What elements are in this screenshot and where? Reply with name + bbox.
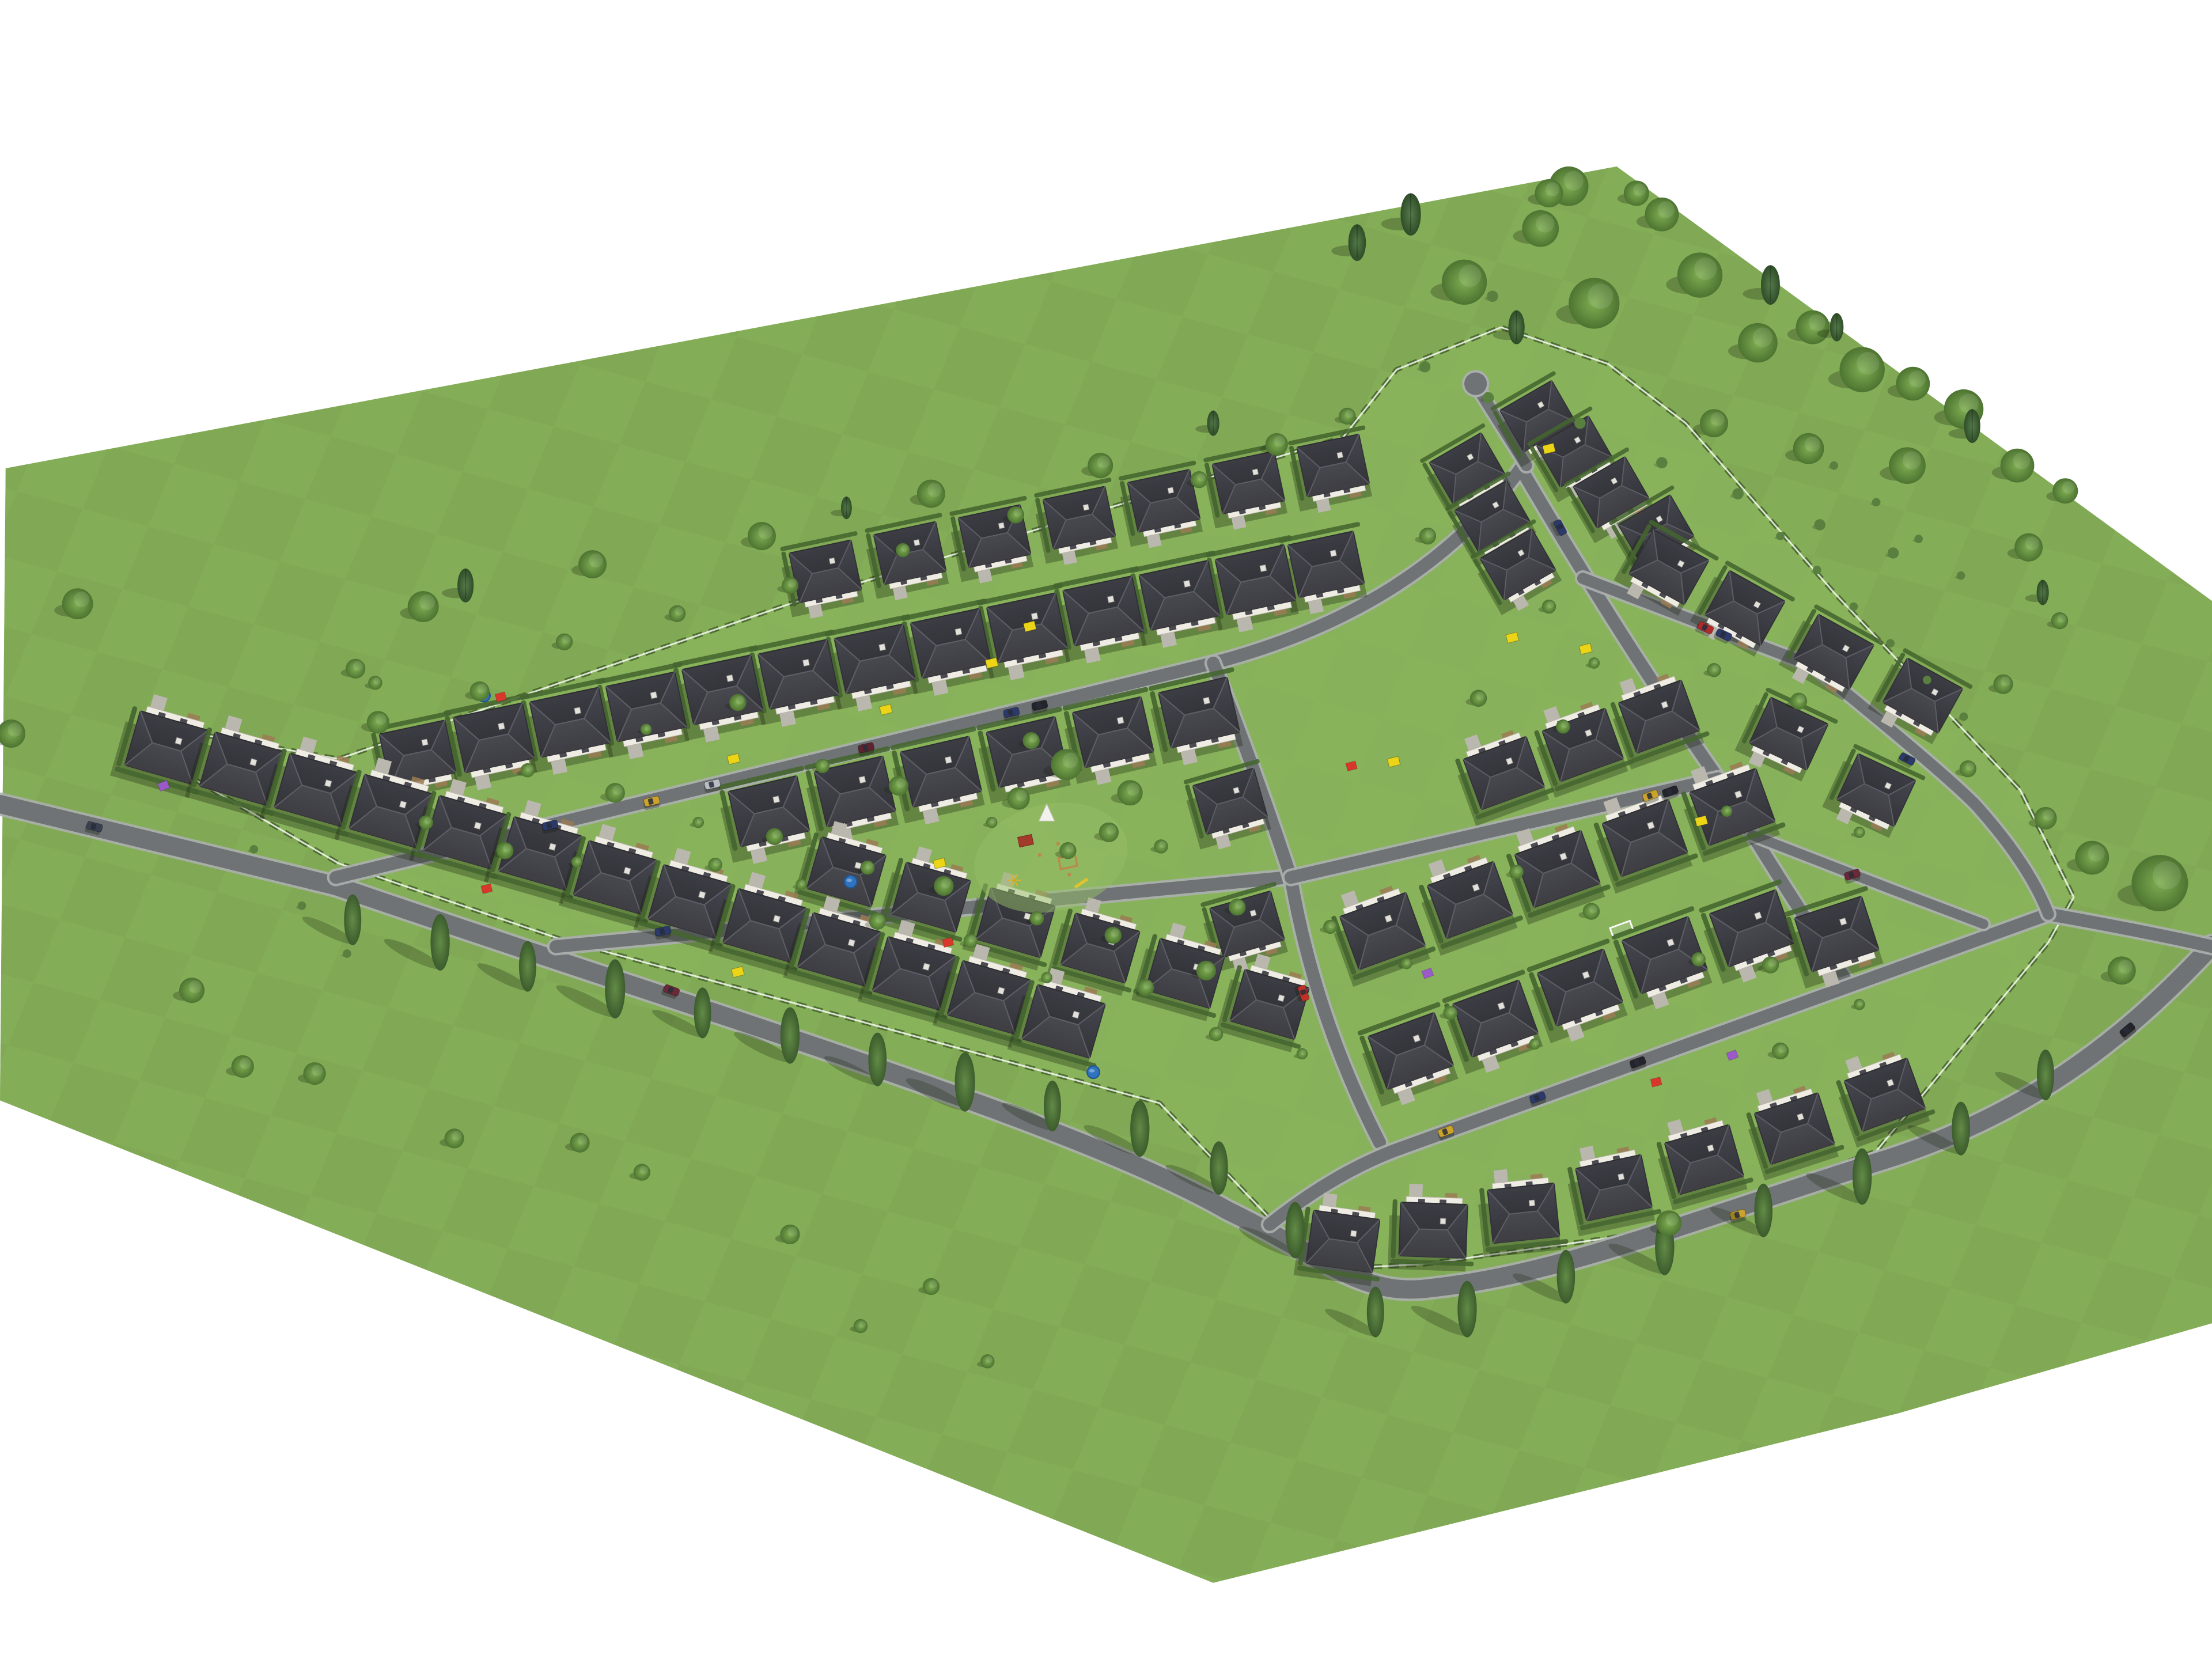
tree-highlight <box>1858 828 1863 834</box>
bush-crown <box>1830 461 1838 470</box>
chimney <box>650 692 657 699</box>
tree-highlight <box>575 858 581 863</box>
tree-highlight <box>375 714 387 725</box>
tree-highlight <box>425 817 431 824</box>
road-knuckle <box>1464 373 1487 395</box>
chimney <box>1233 787 1240 793</box>
tree-highlight <box>866 862 873 869</box>
chimney <box>726 675 733 681</box>
tree-highlight <box>645 725 650 730</box>
tree-highlight <box>788 579 797 588</box>
tree-crown <box>1557 1250 1575 1304</box>
tree-highlight <box>562 635 571 644</box>
tree-crown <box>1754 1184 1772 1237</box>
tree-highlight <box>1143 981 1152 990</box>
tree-highlight <box>2043 809 2054 821</box>
tree-highlight <box>2118 960 2132 974</box>
chimney <box>1529 1200 1535 1206</box>
chimney <box>773 915 780 923</box>
tree-highlight <box>1725 807 1731 813</box>
bush-crown <box>298 902 306 910</box>
tree-highlight <box>419 594 435 610</box>
chimney <box>422 739 428 745</box>
tree-highlight <box>927 483 941 497</box>
tree-highlight <box>1697 954 1704 961</box>
tree-highlight <box>1204 963 1214 973</box>
tree-crown <box>1952 1102 1970 1156</box>
tree-highlight <box>477 684 487 694</box>
chimney <box>914 539 920 546</box>
play-post <box>1067 873 1071 876</box>
tree-highlight <box>74 592 89 607</box>
tree-highlight <box>736 696 744 704</box>
tree-crown <box>1367 1286 1384 1337</box>
tree-highlight <box>1908 370 1925 387</box>
tree-highlight <box>1107 825 1116 835</box>
tree-highlight <box>1274 435 1285 447</box>
tree-highlight <box>2153 861 2181 889</box>
tree-highlight <box>990 818 996 824</box>
tree-highlight <box>1768 959 1777 967</box>
chimney <box>1330 550 1336 556</box>
chimney <box>773 796 780 803</box>
tree-highlight <box>1593 658 1599 664</box>
tree-highlight <box>312 1065 323 1076</box>
tree-highlight <box>1533 1040 1539 1046</box>
tree-highlight <box>589 553 603 567</box>
chimney <box>1618 1173 1624 1180</box>
bush-crown <box>1923 676 1931 684</box>
tree-highlight <box>901 545 908 552</box>
tree-highlight <box>1753 327 1772 347</box>
tree-highlight <box>941 878 951 888</box>
tree-crown <box>1210 1141 1228 1195</box>
chimney <box>549 843 556 851</box>
tree-crown <box>955 1052 975 1112</box>
tree-highlight <box>821 760 828 767</box>
chimney <box>998 987 1005 995</box>
tree-crown <box>605 959 625 1018</box>
tree-highlight <box>1159 841 1166 848</box>
tree-highlight <box>1561 721 1568 728</box>
chimney <box>1250 910 1256 916</box>
tree-highlight <box>1476 692 1485 700</box>
bush-crown <box>343 949 351 958</box>
tree-highlight <box>240 1058 251 1069</box>
site-plan-rendering <box>0 0 2212 1659</box>
chimney <box>855 862 862 869</box>
tree-highlight <box>1426 529 1434 538</box>
tree-highlight <box>1515 866 1522 873</box>
bush-crown <box>1776 532 1785 540</box>
tree-crown <box>694 987 711 1038</box>
tree-highlight <box>1063 752 1078 768</box>
tree-highlight <box>1588 283 1613 309</box>
tree-crown <box>1457 1281 1476 1338</box>
bush-crown <box>1487 290 1498 302</box>
tree-highlight <box>1459 264 1481 287</box>
chimney <box>829 558 835 564</box>
tree-highlight <box>1858 1000 1863 1006</box>
tree-highlight <box>1066 844 1074 853</box>
tree-highlight <box>1778 1044 1787 1053</box>
tree-highlight <box>758 525 772 539</box>
tree-crown <box>430 914 449 971</box>
tree-highlight <box>800 880 806 886</box>
tree-crown <box>344 895 361 945</box>
tree-crown <box>781 1007 800 1064</box>
chimney <box>1184 580 1191 587</box>
chimney <box>574 707 581 714</box>
chimney <box>1168 487 1174 494</box>
tree-crown <box>2037 1050 2054 1100</box>
play-post <box>1038 853 1041 857</box>
chimney <box>1024 913 1031 920</box>
bush-crown <box>1814 519 1825 531</box>
tree-crown <box>1286 1202 1305 1259</box>
tree-highlight <box>896 778 906 788</box>
bush-crown <box>1813 566 1821 574</box>
tree-highlight <box>1694 257 1717 280</box>
tree-highlight <box>526 765 533 772</box>
tree-highlight <box>1589 905 1598 914</box>
chimney <box>945 756 952 763</box>
tree-highlight <box>503 844 512 853</box>
bush-crown <box>1732 488 1744 499</box>
chimney <box>250 759 257 766</box>
chimney <box>624 867 631 874</box>
tree-highlight <box>1448 1007 1455 1014</box>
tree-highlight <box>1035 913 1042 920</box>
bush-crown <box>1886 639 1895 647</box>
tree-highlight <box>1805 437 1820 452</box>
tree-highlight <box>2088 844 2104 861</box>
tree-highlight <box>986 1356 993 1363</box>
tree-highlight <box>1710 412 1724 426</box>
tree-crown <box>1130 1100 1149 1157</box>
tree-highlight <box>1029 734 1038 743</box>
tree-highlight <box>1903 451 1921 469</box>
tree-highlight <box>373 677 380 684</box>
maypole-top <box>1013 878 1016 882</box>
chimney <box>1117 717 1124 724</box>
chimney <box>325 780 332 787</box>
chimney <box>923 963 930 971</box>
chimney <box>699 891 706 899</box>
bush-crown <box>1574 418 1586 429</box>
tree-highlight <box>1547 601 1554 608</box>
chimney <box>1203 697 1210 704</box>
tree-highlight <box>1345 410 1354 418</box>
tree-highlight <box>1235 900 1244 909</box>
tree-highlight <box>1016 790 1027 801</box>
tree-highlight <box>2058 614 2066 623</box>
bush-crown <box>1957 571 1965 580</box>
tree-highlight <box>969 935 976 942</box>
tree-highlight <box>1097 456 1110 468</box>
bush-crown <box>1872 498 1881 506</box>
chimney <box>1031 613 1038 620</box>
garden-pool <box>1087 1066 1100 1078</box>
tree-highlight <box>1857 352 1879 374</box>
tree-highlight <box>1127 783 1139 796</box>
chimney <box>859 776 866 783</box>
tree-highlight <box>1666 1213 1679 1226</box>
tree-highlight <box>353 661 363 671</box>
tree-highlight <box>1046 974 1051 979</box>
play-post <box>1056 842 1060 845</box>
chimney <box>1083 504 1089 510</box>
garden-pool <box>844 876 857 888</box>
tree-highlight <box>1536 214 1554 233</box>
bush-crown <box>1419 361 1431 373</box>
tree-highlight <box>1966 762 1975 771</box>
tree-highlight <box>2062 481 2075 494</box>
chimney <box>1707 1145 1714 1152</box>
tree-highlight <box>929 1280 938 1289</box>
chimney <box>474 822 481 829</box>
chimney <box>1107 596 1114 603</box>
tree-highlight <box>1405 959 1411 965</box>
chimney <box>879 644 886 651</box>
tree-highlight <box>787 1226 797 1236</box>
tree-highlight <box>577 1135 587 1145</box>
tree-crown <box>1044 1081 1061 1131</box>
chimney <box>399 801 406 808</box>
tree-highlight <box>1301 1050 1306 1055</box>
tree-highlight <box>772 830 781 839</box>
tree-highlight <box>640 1166 649 1175</box>
pool-highlight <box>1089 1069 1095 1073</box>
chimney <box>1260 565 1267 571</box>
tree-highlight <box>2001 676 2010 686</box>
tree-highlight <box>452 1131 461 1141</box>
bush-crown <box>1850 603 1858 611</box>
tree-highlight <box>1014 508 1022 517</box>
tree-highlight <box>714 859 721 866</box>
tree-highlight <box>1658 201 1675 218</box>
chimney <box>848 939 855 946</box>
chimney <box>1351 1230 1357 1237</box>
tree-highlight <box>1197 473 1206 482</box>
chimney <box>1252 469 1259 475</box>
chimney <box>175 737 182 745</box>
tree-highlight <box>1214 1029 1221 1036</box>
chimney <box>1440 1218 1446 1224</box>
tree-highlight <box>1328 921 1335 928</box>
chimney <box>998 522 1005 529</box>
tree-crown <box>868 1033 887 1086</box>
tree-highlight <box>675 607 684 616</box>
tree-highlight <box>1546 182 1559 196</box>
tree-highlight <box>1111 929 1120 937</box>
bush-crown <box>1960 713 1968 721</box>
chimney <box>1337 452 1343 459</box>
tree-highlight <box>1809 314 1825 331</box>
site-plan-canvas <box>0 0 2212 1659</box>
tree-crown <box>1853 1148 1872 1205</box>
chimney <box>1278 995 1285 1002</box>
tree-highlight <box>2013 452 2030 469</box>
bush-crown <box>249 845 258 854</box>
tree-highlight <box>612 785 622 795</box>
chimney <box>803 659 810 666</box>
tree-highlight <box>1712 665 1719 672</box>
tree-highlight <box>1633 183 1646 196</box>
pool-highlight <box>846 878 852 882</box>
tree-highlight <box>1797 695 1805 703</box>
tree-highlight <box>2025 536 2039 550</box>
tree-highlight <box>189 980 202 993</box>
chimney <box>498 723 505 730</box>
tree-highlight <box>7 722 21 736</box>
tree-highlight <box>876 915 884 923</box>
chimney <box>1073 1011 1080 1018</box>
tree-crown <box>519 941 536 991</box>
bush-crown <box>1656 457 1668 468</box>
bush-crown <box>1914 535 1923 543</box>
tree-highlight <box>1564 171 1584 191</box>
chimney <box>955 628 962 635</box>
bush-crown <box>1483 392 1494 404</box>
tree-highlight <box>1959 393 1978 413</box>
tree-highlight <box>859 1320 866 1327</box>
bush-crown <box>1888 547 1899 559</box>
tree-highlight <box>697 818 703 824</box>
